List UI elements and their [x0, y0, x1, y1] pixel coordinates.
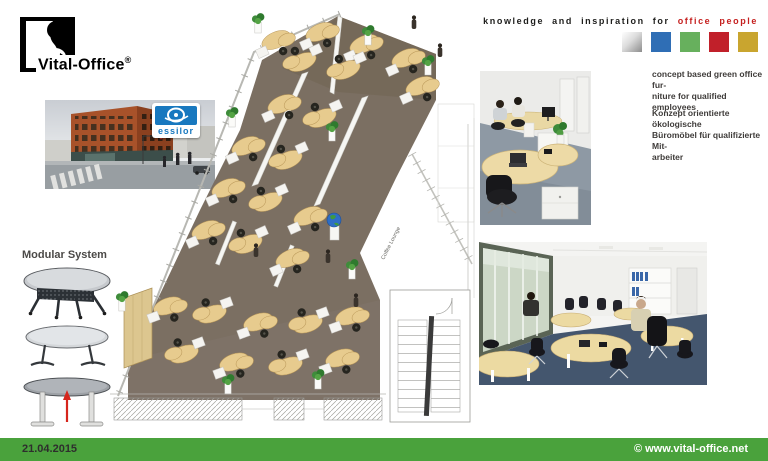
tagline-highlight: office people [678, 16, 758, 26]
swatch-silver [622, 32, 642, 52]
table-conference-icon [24, 268, 110, 319]
coffee-lounge-label: Coffee Lounge [380, 226, 402, 261]
footer-date: 21.04.2015 [22, 443, 77, 455]
footer-website-link[interactable]: © www.vital-office.net [634, 443, 748, 455]
stairs-plan [390, 290, 470, 422]
table-height-adjustable-icon [24, 378, 110, 426]
office-floor-plan: Coffee Lounge [106, 6, 478, 434]
tagline-prefix: knowledge and inspiration for [483, 16, 669, 26]
office-photo-bottom [479, 242, 707, 385]
caption-english: concept based green office fur- niture f… [652, 69, 764, 113]
tagline: knowledge and inspiration for office peo… [483, 16, 758, 26]
swatch-red [709, 32, 729, 52]
swatch-blue [651, 32, 671, 52]
office-photo-top [480, 71, 591, 225]
swatch-green [680, 32, 700, 52]
caption-german: Konzept orientierte ökologische Büromöbe… [652, 108, 764, 163]
color-swatch-row [622, 32, 758, 52]
table-desk-icon [26, 326, 108, 365]
folding-screen [124, 288, 152, 368]
swatch-gold [738, 32, 758, 52]
footer-bar: 21.04.2015 © www.vital-office.net [0, 438, 768, 461]
modular-system-label: Modular System [22, 249, 107, 261]
